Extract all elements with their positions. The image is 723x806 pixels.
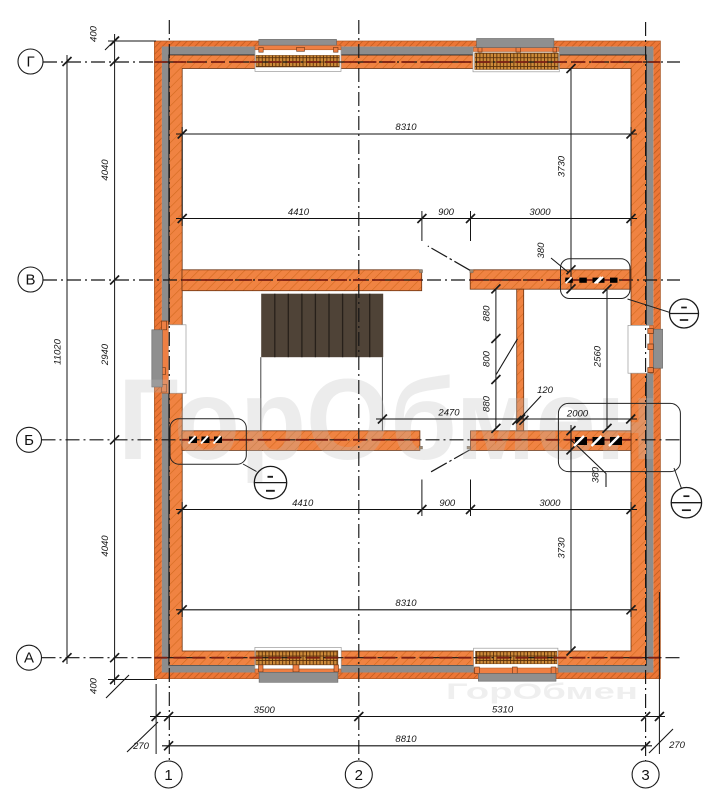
svg-text:1: 1 [164, 767, 172, 784]
svg-text:2470: 2470 [437, 408, 460, 419]
svg-text:880: 880 [482, 305, 493, 322]
svg-text:2940: 2940 [100, 343, 111, 366]
svg-text:4410: 4410 [292, 498, 314, 509]
svg-text:А: А [24, 650, 34, 667]
svg-text:270: 270 [132, 741, 150, 752]
svg-text:380: 380 [536, 242, 547, 259]
svg-text:3500: 3500 [254, 705, 276, 716]
svg-text:3730: 3730 [557, 537, 568, 559]
svg-text:400: 400 [89, 25, 100, 42]
svg-text:800: 800 [482, 350, 493, 367]
svg-text:8310: 8310 [395, 122, 417, 133]
svg-text:3: 3 [641, 767, 649, 784]
svg-text:3000: 3000 [539, 498, 561, 509]
svg-text:880: 880 [482, 395, 493, 412]
svg-text:3000: 3000 [529, 207, 551, 218]
svg-text:2: 2 [355, 767, 363, 784]
svg-text:ГорОбмен: ГорОбмен [446, 679, 638, 704]
svg-text:400: 400 [89, 677, 100, 694]
svg-text:2560: 2560 [593, 345, 604, 368]
svg-text:2000: 2000 [566, 409, 589, 420]
svg-text:8810: 8810 [395, 734, 417, 745]
svg-text:В: В [25, 272, 35, 289]
svg-text:270: 270 [668, 740, 686, 751]
svg-text:Б: Б [24, 432, 34, 449]
svg-text:3730: 3730 [557, 155, 568, 177]
svg-text:380: 380 [591, 466, 602, 483]
svg-text:4410: 4410 [288, 207, 310, 218]
svg-text:Г: Г [26, 54, 34, 71]
svg-text:4040: 4040 [100, 535, 111, 557]
svg-text:4040: 4040 [100, 159, 111, 181]
svg-text:5310: 5310 [492, 705, 514, 716]
svg-text:ГорОбмен: ГорОбмен [118, 356, 661, 484]
svg-text:11020: 11020 [53, 338, 64, 364]
svg-text:120: 120 [537, 385, 554, 396]
svg-text:8310: 8310 [395, 598, 417, 609]
svg-text:900: 900 [438, 207, 455, 218]
svg-text:900: 900 [439, 498, 456, 509]
